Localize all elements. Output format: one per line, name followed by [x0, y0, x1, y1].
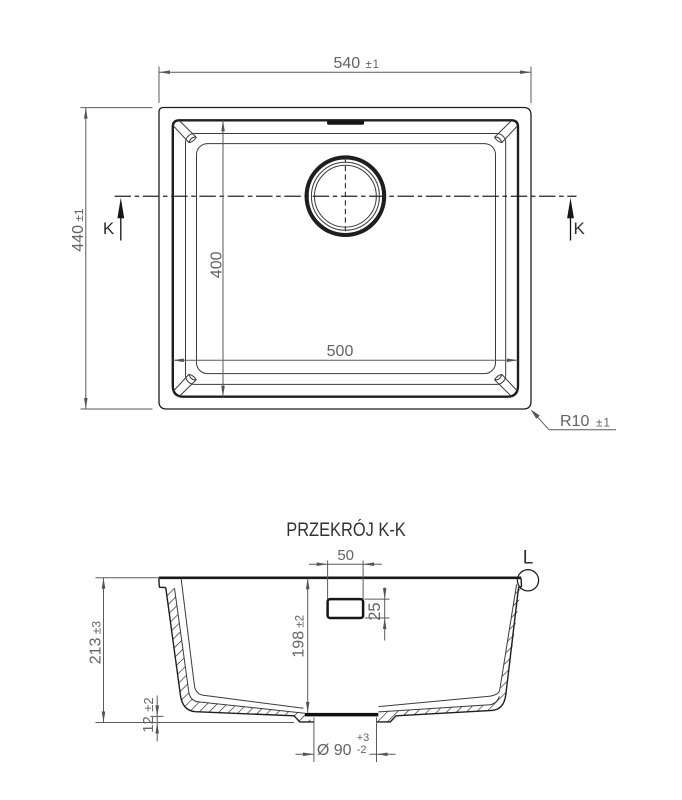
svg-text:-2: -2	[357, 744, 367, 756]
svg-text:400: 400	[208, 251, 225, 278]
svg-text:±2: ±2	[141, 697, 156, 711]
svg-text:K: K	[103, 219, 115, 238]
svg-text:+3: +3	[357, 732, 370, 744]
svg-text:Ø 90: Ø 90	[317, 742, 352, 759]
svg-text:440 ±1: 440 ±1	[70, 208, 87, 252]
svg-text:±1: ±1	[366, 59, 380, 71]
svg-text:12: 12	[140, 716, 157, 733]
svg-text:50: 50	[337, 547, 354, 564]
svg-text:213 ±3: 213 ±3	[88, 621, 105, 665]
svg-text:L: L	[523, 548, 534, 569]
svg-text:±1: ±1	[596, 417, 611, 429]
svg-text:25: 25	[366, 602, 384, 620]
svg-text:540: 540	[333, 55, 360, 72]
svg-text:500: 500	[327, 343, 354, 360]
svg-text:R10: R10	[560, 413, 589, 430]
svg-text:K: K	[574, 219, 586, 238]
svg-text:PRZEKRÓJ K-K: PRZEKRÓJ K-K	[286, 518, 406, 541]
